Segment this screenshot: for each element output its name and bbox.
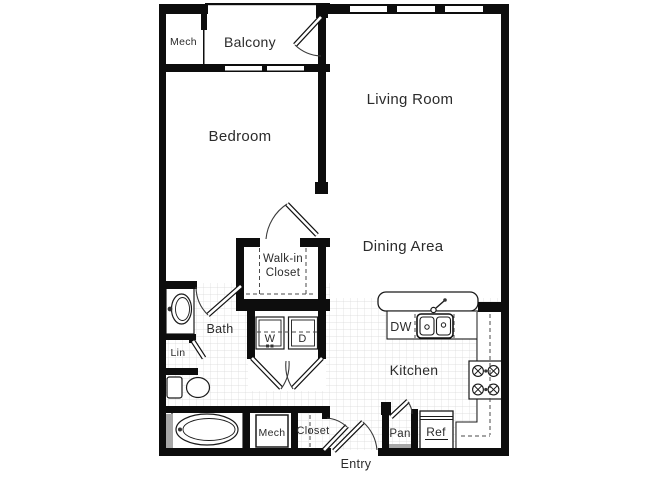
bedroom-window <box>267 66 304 71</box>
floor-plan-page: Mech Balcony Living Room Bedroom Walk-in… <box>0 0 670 480</box>
label-entry: Entry <box>341 457 372 471</box>
bath-sink <box>166 286 194 334</box>
sink-faucet <box>168 307 173 312</box>
balcony-door <box>295 17 321 56</box>
living-room-window <box>445 6 483 12</box>
label-refrigerator: Ref <box>426 425 446 439</box>
label-balcony: Balcony <box>224 34 276 50</box>
label-closet: Closet <box>297 425 330 437</box>
floor-plan: Mech Balcony Living Room Bedroom Walk-in… <box>0 0 670 480</box>
label-walkin-closet-2: Closet <box>266 267 301 279</box>
tub-faucet <box>178 428 182 432</box>
kitchen-faucet <box>431 307 436 312</box>
label-dryer: D <box>298 333 306 345</box>
label-pantry: Pan <box>389 428 410 440</box>
bathtub <box>172 410 243 449</box>
label-living-room: Living Room <box>367 91 454 108</box>
label-linen: Lin <box>171 347 186 359</box>
tub-room-panel <box>166 414 173 448</box>
label-bath: Bath <box>207 322 234 336</box>
living-room-window <box>397 6 435 12</box>
label-kitchen: Kitchen <box>390 362 439 378</box>
bar-counter <box>378 292 478 311</box>
bedroom-door <box>266 204 317 239</box>
label-walkin-closet-1: Walk-in <box>263 253 303 265</box>
stove <box>469 361 502 399</box>
balcony-railing <box>205 3 330 5</box>
living-room-window <box>350 6 387 12</box>
label-dishwasher: DW <box>390 320 411 334</box>
label-bedroom: Bedroom <box>209 128 272 145</box>
label-mech-bottom: Mech <box>259 427 286 439</box>
label-mech-top: Mech <box>170 36 197 48</box>
label-washer: W <box>265 333 276 345</box>
bedroom-window <box>225 66 262 71</box>
label-dining-area: Dining Area <box>363 238 444 255</box>
